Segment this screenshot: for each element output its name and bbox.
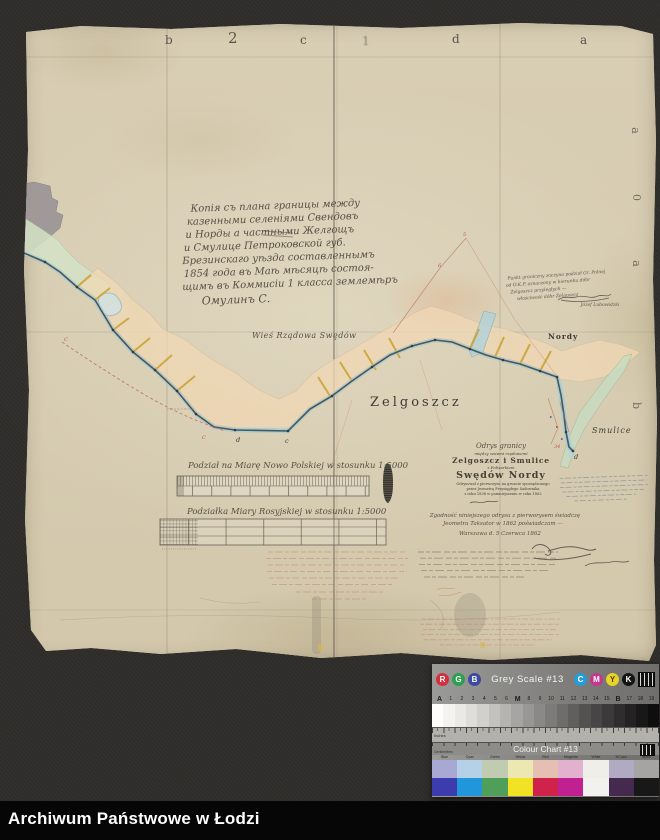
colour-patch xyxy=(533,760,558,778)
grey-patch xyxy=(466,704,477,727)
scale-index: 4 xyxy=(479,696,490,702)
inches-ruler: Inches xyxy=(432,727,659,742)
village-label-swedow: Wieś Rządowa Swędów xyxy=(252,331,356,340)
title-note1: Odrysował z pierworysu na gruncie sporzą… xyxy=(456,482,549,486)
corner-note-signature: Józef Lubowidzki xyxy=(580,301,620,308)
grey-patch xyxy=(591,704,602,727)
title-attest1: Zgodność niniejszego odrysu z pierworyse… xyxy=(429,512,581,519)
colour-patch xyxy=(533,778,558,796)
cyan-chip: C xyxy=(574,673,587,686)
margin-letter: 0 xyxy=(630,194,643,201)
scale-index: 18 xyxy=(635,696,646,702)
black-chip: K xyxy=(622,673,635,686)
map-sheet-paper: Копія съ плана границы между казенными с… xyxy=(21,20,658,662)
saturated-colour-row xyxy=(432,778,659,796)
title-note3: z roku 1838 w pomniejszeniu w roku 1862 xyxy=(464,492,541,496)
colour-patch xyxy=(583,778,608,796)
title-attest2: Jeometra Taksator w 1862 poświadczam — xyxy=(442,520,563,527)
colour-patch xyxy=(508,778,533,796)
point-letter-d: d xyxy=(236,436,240,444)
grey-patch xyxy=(614,704,625,727)
scale-index: 5 xyxy=(490,696,501,702)
scale-label-russian: Podziałka Miary Rosyjskiej w stosunku 1:… xyxy=(186,507,387,517)
archive-footer-bar: Archiwum Państwowe w Łodzi xyxy=(0,801,660,840)
margin-letter: a xyxy=(630,260,643,267)
grey-patch xyxy=(568,704,579,727)
pastel-colour-row xyxy=(432,760,659,778)
colour-patch xyxy=(558,760,583,778)
grey-patch xyxy=(511,704,522,727)
grey-patch xyxy=(636,704,647,727)
scale-index: A xyxy=(434,696,445,703)
grey-patch xyxy=(489,704,500,727)
ruler-unit-label: Centimetres xyxy=(434,750,453,754)
colour-patch xyxy=(482,778,507,796)
blue-chip: B xyxy=(468,673,481,686)
grey-patch xyxy=(523,704,534,727)
colour-chart-header: Colour Chart #13 Centimetres xyxy=(432,742,659,755)
grey-patch xyxy=(432,704,443,727)
faded-brown-note-center xyxy=(418,552,558,577)
scale-index: 14 xyxy=(590,696,601,702)
grey-patch xyxy=(443,704,454,727)
grey-scale-header: R G B Grey Scale #13 C M Y K xyxy=(432,664,659,694)
grey-gradient-strip xyxy=(432,704,659,727)
colour-patch xyxy=(432,760,457,778)
grey-patch xyxy=(648,704,659,727)
scale-index: M xyxy=(512,696,523,703)
scale-index: 17 xyxy=(624,696,635,702)
scale-index: 13 xyxy=(579,696,590,702)
title-estate: Swędów Nordy xyxy=(456,470,546,481)
grey-patch xyxy=(534,704,545,727)
ruler-unit-label: Inches xyxy=(434,733,446,738)
scale-index: 9 xyxy=(534,696,545,702)
scale-index: 12 xyxy=(568,696,579,702)
scale-index: 6 xyxy=(501,696,512,702)
colour-patch xyxy=(634,760,659,778)
colour-patch xyxy=(457,760,482,778)
colour-patch xyxy=(432,778,457,796)
yellow-edge-strip xyxy=(10,222,24,572)
red-mark-34: 34 xyxy=(554,444,560,450)
margin-letter: b xyxy=(165,33,173,47)
grey-patch xyxy=(455,704,466,727)
place-label-smulice: Smulice xyxy=(592,426,632,435)
grey-patch xyxy=(625,704,636,727)
inscription-signature: Омулинъ С. xyxy=(201,292,270,307)
green-chip: G xyxy=(452,673,465,686)
red-mark-5: 5 xyxy=(463,232,466,238)
calibration-card: R G B Grey Scale #13 C M Y K A 1 2 3 4 5… xyxy=(432,664,659,797)
scale-bar-polish xyxy=(177,476,369,496)
scale-index: 2 xyxy=(456,696,467,702)
colour-patch xyxy=(609,778,634,796)
margin-letter: a xyxy=(629,127,642,134)
colour-patch xyxy=(558,778,583,796)
centimetre-ticks xyxy=(432,743,659,746)
grey-patch xyxy=(557,704,568,727)
scale-index: 8 xyxy=(523,696,534,702)
faded-red-note-bottom xyxy=(420,619,560,645)
title-note2: przez Jeometrę Przysięgłego Sadownika xyxy=(466,487,540,491)
margin-letter: c xyxy=(300,33,307,47)
fold-lines xyxy=(24,22,655,660)
scale-label-polish: Podział na Miarę Nowo Polskiej w stosunk… xyxy=(187,461,409,471)
magenta-chip: M xyxy=(590,673,603,686)
grey-patch xyxy=(545,704,556,727)
title-date: Warszawa d. 5 Czerwca 1862 xyxy=(459,531,541,537)
red-mark-c: C xyxy=(202,435,206,441)
scale-index: 3 xyxy=(467,696,478,702)
point-letter-d: d xyxy=(574,453,578,461)
faded-blue-note xyxy=(560,475,649,501)
red-chip: R xyxy=(436,673,449,686)
margin-letter: b xyxy=(630,402,643,409)
colour-patch xyxy=(457,778,482,796)
title-heading: Odrys granicy xyxy=(476,442,527,450)
scale-index: 15 xyxy=(601,696,612,702)
barcode-sticker xyxy=(640,744,655,756)
archive-name: Archiwum Państwowe w Łodzi xyxy=(8,801,260,837)
scale-index: 1 xyxy=(445,696,456,702)
barcode-sticker xyxy=(638,672,655,687)
margin-letter: 2 xyxy=(228,29,238,47)
colour-patch xyxy=(634,778,659,796)
point-letter-c: c xyxy=(285,437,289,445)
colour-patch xyxy=(583,760,608,778)
place-label-zelgoszcz: Zelgoszcz xyxy=(370,395,462,410)
central-inscription: Копія съ плана границы между казенными с… xyxy=(179,197,399,308)
margin-letter: d xyxy=(452,32,460,46)
grey-patch xyxy=(500,704,511,727)
scale-index: 19 xyxy=(646,696,657,702)
margin-letter: 1 xyxy=(362,34,370,48)
archival-photo-stage: Копія съ плана границы между казенными с… xyxy=(0,0,660,840)
grey-patch xyxy=(579,704,590,727)
colour-patch xyxy=(609,760,634,778)
scale-index: 11 xyxy=(557,696,568,702)
grey-patch xyxy=(477,704,488,727)
grey-scale-title: Grey Scale #13 xyxy=(484,674,571,685)
scale-index: B xyxy=(613,696,624,703)
yellow-chip: Y xyxy=(606,673,619,686)
title-villages: Zelgoszcz i Smulice xyxy=(452,456,550,465)
red-mark-c: C xyxy=(64,337,68,343)
margin-letter: a xyxy=(580,33,587,47)
colour-patch xyxy=(482,760,507,778)
grey-patch xyxy=(602,704,613,727)
scale-index: 10 xyxy=(546,696,557,702)
grey-scale-index-row: A 1 2 3 4 5 6 M 8 9 10 11 12 13 14 15 B … xyxy=(432,694,659,704)
colour-patch xyxy=(508,760,533,778)
scale-bar-russian xyxy=(160,519,386,549)
place-label-nordy: Nordy xyxy=(548,332,578,341)
